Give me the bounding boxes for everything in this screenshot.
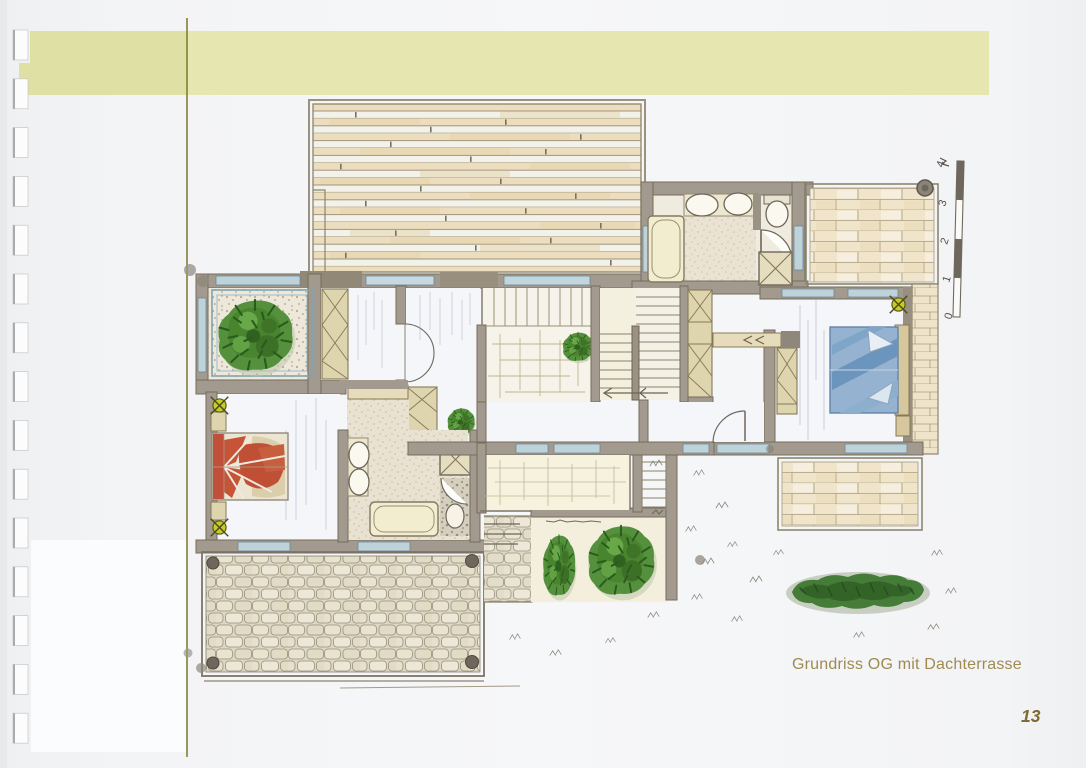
svg-text:13: 13 bbox=[1021, 706, 1041, 726]
svg-text:Grundriss OG mit Dachterrasse: Grundriss OG mit Dachterrasse bbox=[792, 656, 1022, 673]
